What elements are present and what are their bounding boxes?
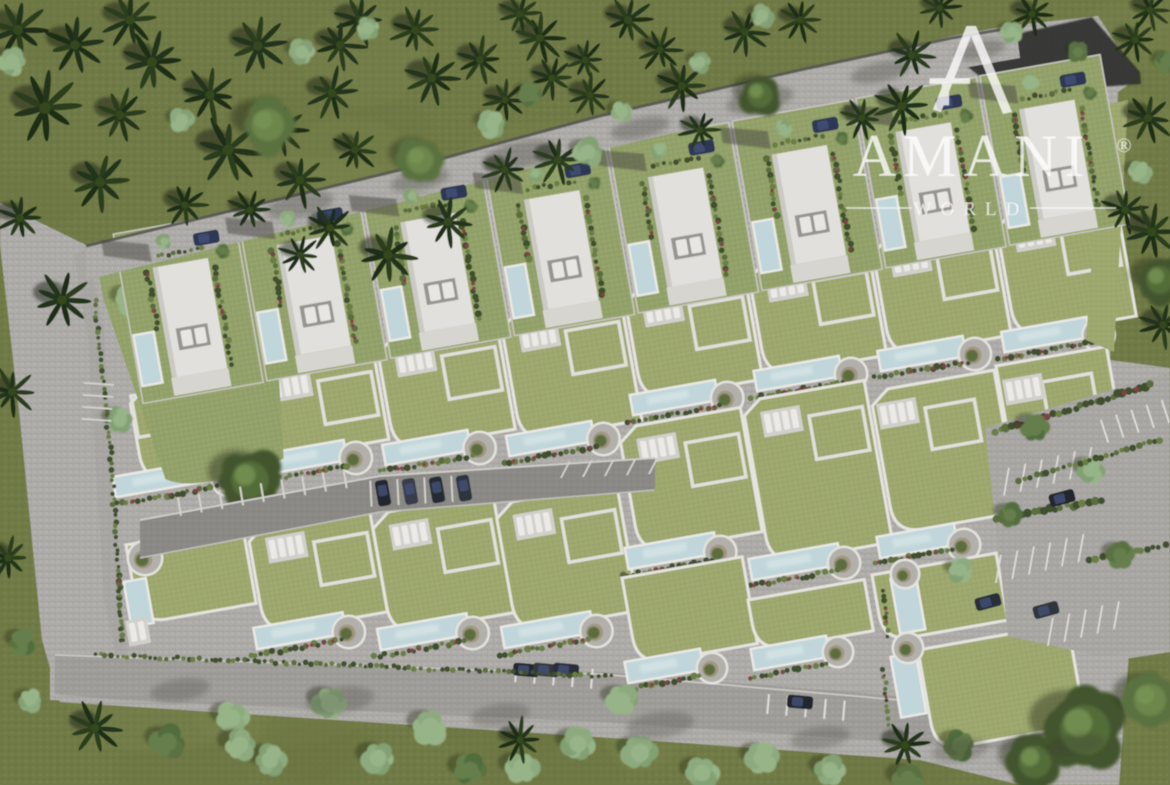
svg-text:WORLD: WORLD (914, 199, 1029, 220)
svg-text:AMANI: AMANI (853, 123, 1091, 189)
svg-text:®: ® (1116, 135, 1131, 157)
